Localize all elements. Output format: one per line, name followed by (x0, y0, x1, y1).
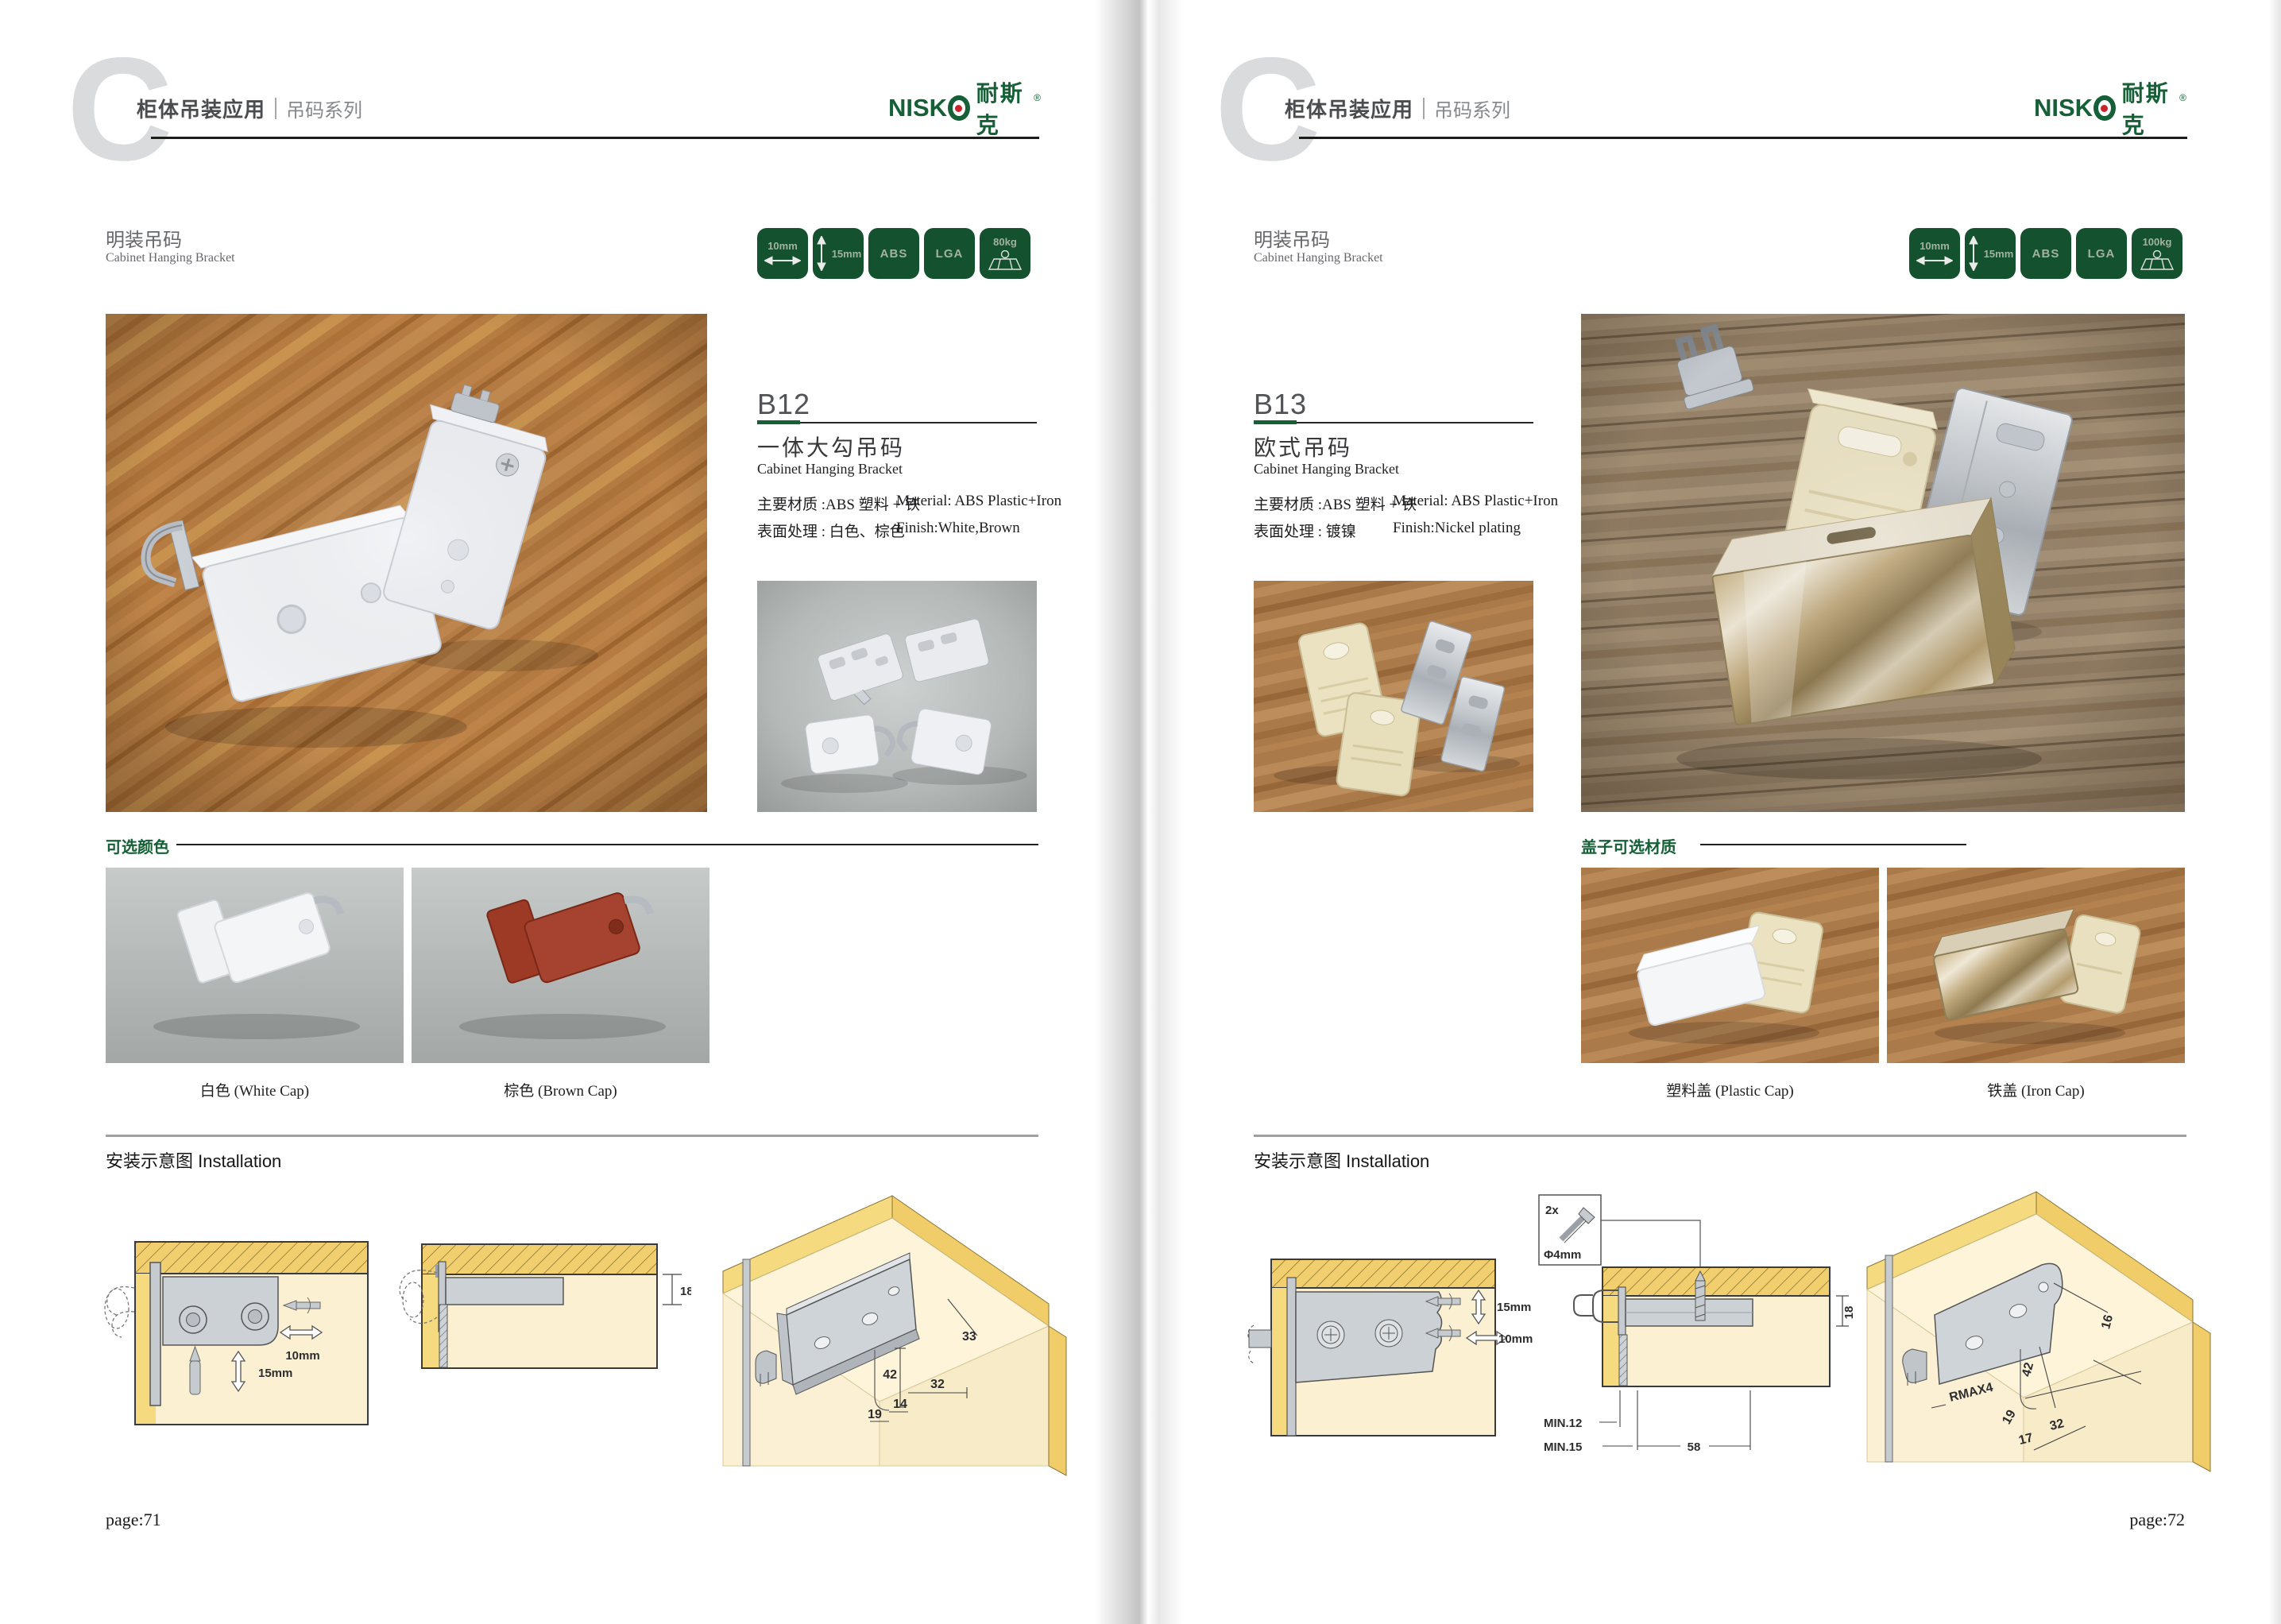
options-rule (176, 844, 1038, 845)
main-product-photo-right (1581, 314, 2185, 812)
product-name-en-right: Cabinet Hanging Bracket (1254, 461, 1399, 478)
dim-d3-19: 19 (868, 1408, 882, 1421)
book-fold-gutter (1095, 0, 1184, 1624)
options-label: 可选颜色 (106, 834, 169, 857)
load-icon (988, 250, 1023, 271)
badge-cert: LGA (924, 228, 975, 279)
install-diagram-1: 10mm 15mm (99, 1235, 373, 1430)
install-label-right: 安装示意图 Installation (1254, 1147, 1429, 1173)
catalog-spread: C 柜体吊装应用 吊码系列 NISK 耐斯克 ® 明装吊码 Cabinet Ha… (0, 0, 2281, 1624)
install-rule (106, 1135, 1038, 1137)
logo-o-icon (948, 95, 970, 121)
dim-d3-33: 33 (962, 1330, 976, 1344)
install-label: 安装示意图 Installation (106, 1147, 281, 1173)
material-en: Material: ABS Plastic+Iron (896, 493, 1061, 510)
header-divider-right (1423, 98, 1425, 119)
logo-red-dot-icon (955, 105, 962, 112)
header-rule-right (1299, 137, 2187, 139)
badge-height-label-r: 15mm (1984, 248, 2014, 260)
badge-load: 80kg (980, 228, 1030, 279)
dim-d3-32: 32 (930, 1378, 945, 1391)
page-number-left: page:71 (106, 1510, 161, 1530)
page-edge-shade (2268, 0, 2281, 1624)
header-title-right: 柜体吊装应用 (1285, 94, 1413, 123)
finish-cn-right: 表面处理 : 镀镍 (1254, 520, 1356, 541)
product-name-en: Cabinet Hanging Bracket (757, 461, 903, 478)
badge-width-label: 10mm (767, 240, 798, 252)
badge-material-label-r: ABS (2032, 247, 2060, 261)
finish-cn: 表面处理 : 白色、棕色 (757, 520, 905, 541)
swatch-caption-white: 白色 (White Cap) (106, 1079, 404, 1100)
install-diagram-1-right: 15mm 10mm (1247, 1254, 1549, 1444)
finish-en: Finish:White,Brown (896, 520, 1020, 537)
section-title-cn: 明装吊码 (106, 224, 182, 252)
dim-min15: MIN.15 (1544, 1440, 1582, 1454)
option-swatch-brown (412, 868, 709, 1063)
product-code-right: B13 (1254, 388, 1307, 421)
dim-58: 58 (1688, 1440, 1701, 1454)
page-header-right: 柜体吊装应用 吊码系列 (1285, 94, 1510, 123)
swatch-caption-iron: 铁盖 (Iron Cap) (1887, 1079, 2185, 1100)
dim-d1-height: 15mm (258, 1367, 292, 1380)
badge-load-label-r: 100kg (2143, 236, 2172, 248)
main-product-photo (106, 314, 707, 812)
option-swatch-plastic (1581, 868, 1879, 1063)
badge-material-label: ABS (880, 247, 908, 261)
badge-material: ABS (868, 228, 919, 279)
spec-badges-right: 10mm 15mm ABS LGA 100kg (1909, 228, 2182, 279)
load-icon (2140, 250, 2175, 271)
header-series: 吊码系列 (286, 95, 362, 122)
badge-cert-label-r: LGA (2088, 247, 2116, 261)
badge-height-label: 15mm (832, 248, 862, 260)
badge-width-r: 10mm (1909, 228, 1960, 279)
page-number-right: page:72 (2042, 1510, 2185, 1530)
finish-en-right: Finish:Nickel plating (1393, 520, 1521, 537)
spec-badges: 10mm 15mm ABS LGA 80kg (757, 228, 1030, 279)
install-diagram-2-right: 2x Φ4mm 18 (1537, 1192, 1855, 1486)
v-arrow-icon (815, 236, 828, 271)
product-code-rule-accent (757, 420, 800, 424)
section-title-en: Cabinet Hanging Bracket (106, 251, 235, 265)
v-arrow-icon (1967, 236, 1980, 271)
logo-chinese-r: 耐斯克 (2122, 76, 2178, 140)
badge-width: 10mm (757, 228, 808, 279)
install-diagram-2: 18 (389, 1238, 691, 1381)
header-series-right: 吊码系列 (1434, 95, 1510, 122)
registered-mark: ® (1034, 92, 1041, 103)
badge-material-r: ABS (2020, 228, 2071, 279)
logo-latin-2: SK (913, 94, 947, 122)
secondary-product-photo-right (1254, 581, 1533, 812)
product-code: B12 (757, 388, 810, 421)
material-en-right: Material: ABS Plastic+Iron (1393, 493, 1558, 510)
section-title-cn-right: 明装吊码 (1254, 224, 1330, 252)
badge-load-label: 80kg (993, 236, 1017, 248)
badge-cert-label: LGA (936, 247, 964, 261)
option-swatch-iron (1887, 868, 2185, 1063)
install-diagram-3-right: 16 42 RMAX4 19 17 32 (1855, 1176, 2213, 1514)
dim-rd1-width: 10mm (1498, 1332, 1533, 1346)
logo-latin-r: NI (2034, 94, 2059, 122)
dim-rd1-height: 15mm (1497, 1301, 1531, 1314)
logo-o-icon-r (2093, 95, 2116, 121)
badge-width-label-r: 10mm (1920, 240, 1950, 252)
install-rule-right (1254, 1135, 2186, 1137)
options-rule-right (1700, 844, 1966, 845)
install-diagram-3: 33 42 32 14 19 (711, 1180, 1069, 1514)
dim-d3-14: 14 (893, 1398, 907, 1411)
option-swatch-white (106, 868, 404, 1063)
dim-d1-width: 10mm (285, 1349, 319, 1363)
product-code-rule-accent-right (1254, 420, 1297, 424)
header-rule (151, 137, 1039, 139)
header-divider (275, 98, 276, 119)
badge-height-r: 15mm (1965, 228, 2016, 279)
swatch-caption-plastic: 塑料盖 (Plastic Cap) (1581, 1079, 1879, 1100)
section-title-en-right: Cabinet Hanging Bracket (1254, 251, 1383, 265)
badge-load-r: 100kg (2132, 228, 2182, 279)
dim-d2-depth: 18 (680, 1285, 691, 1298)
product-name-cn-right: 欧式吊码 (1254, 431, 1352, 462)
registered-mark-r: ® (2179, 92, 2186, 103)
badge-cert-r: LGA (2076, 228, 2127, 279)
logo-chinese: 耐斯克 (976, 76, 1032, 140)
brand-logo: NISK 耐斯克 ® (888, 92, 1041, 124)
dim-rd2-depth: 18 (1842, 1306, 1855, 1320)
swatch-caption-brown: 棕色 (Brown Cap) (412, 1079, 709, 1100)
brand-logo-right: NISK 耐斯克 ® (2034, 92, 2186, 124)
h-arrow-icon (764, 254, 801, 267)
dim-min12: MIN.12 (1544, 1417, 1582, 1430)
dim-d3-42: 42 (883, 1368, 897, 1382)
badge-height: 15mm (813, 228, 864, 279)
logo-latin: NI (888, 94, 913, 122)
screw-dia: Φ4mm (1544, 1248, 1581, 1262)
product-name-cn: 一体大勾吊码 (757, 431, 905, 462)
logo-latin-r2: SK (2059, 94, 2093, 122)
screw-qty: 2x (1545, 1204, 1559, 1217)
logo-red-dot-icon-r (2101, 105, 2108, 112)
secondary-product-photo (757, 581, 1037, 812)
page-header: 柜体吊装应用 吊码系列 (137, 94, 362, 123)
header-title: 柜体吊装应用 (137, 94, 265, 123)
options-label-right: 盖子可选材质 (1581, 834, 1676, 857)
h-arrow-icon (1916, 254, 1953, 267)
